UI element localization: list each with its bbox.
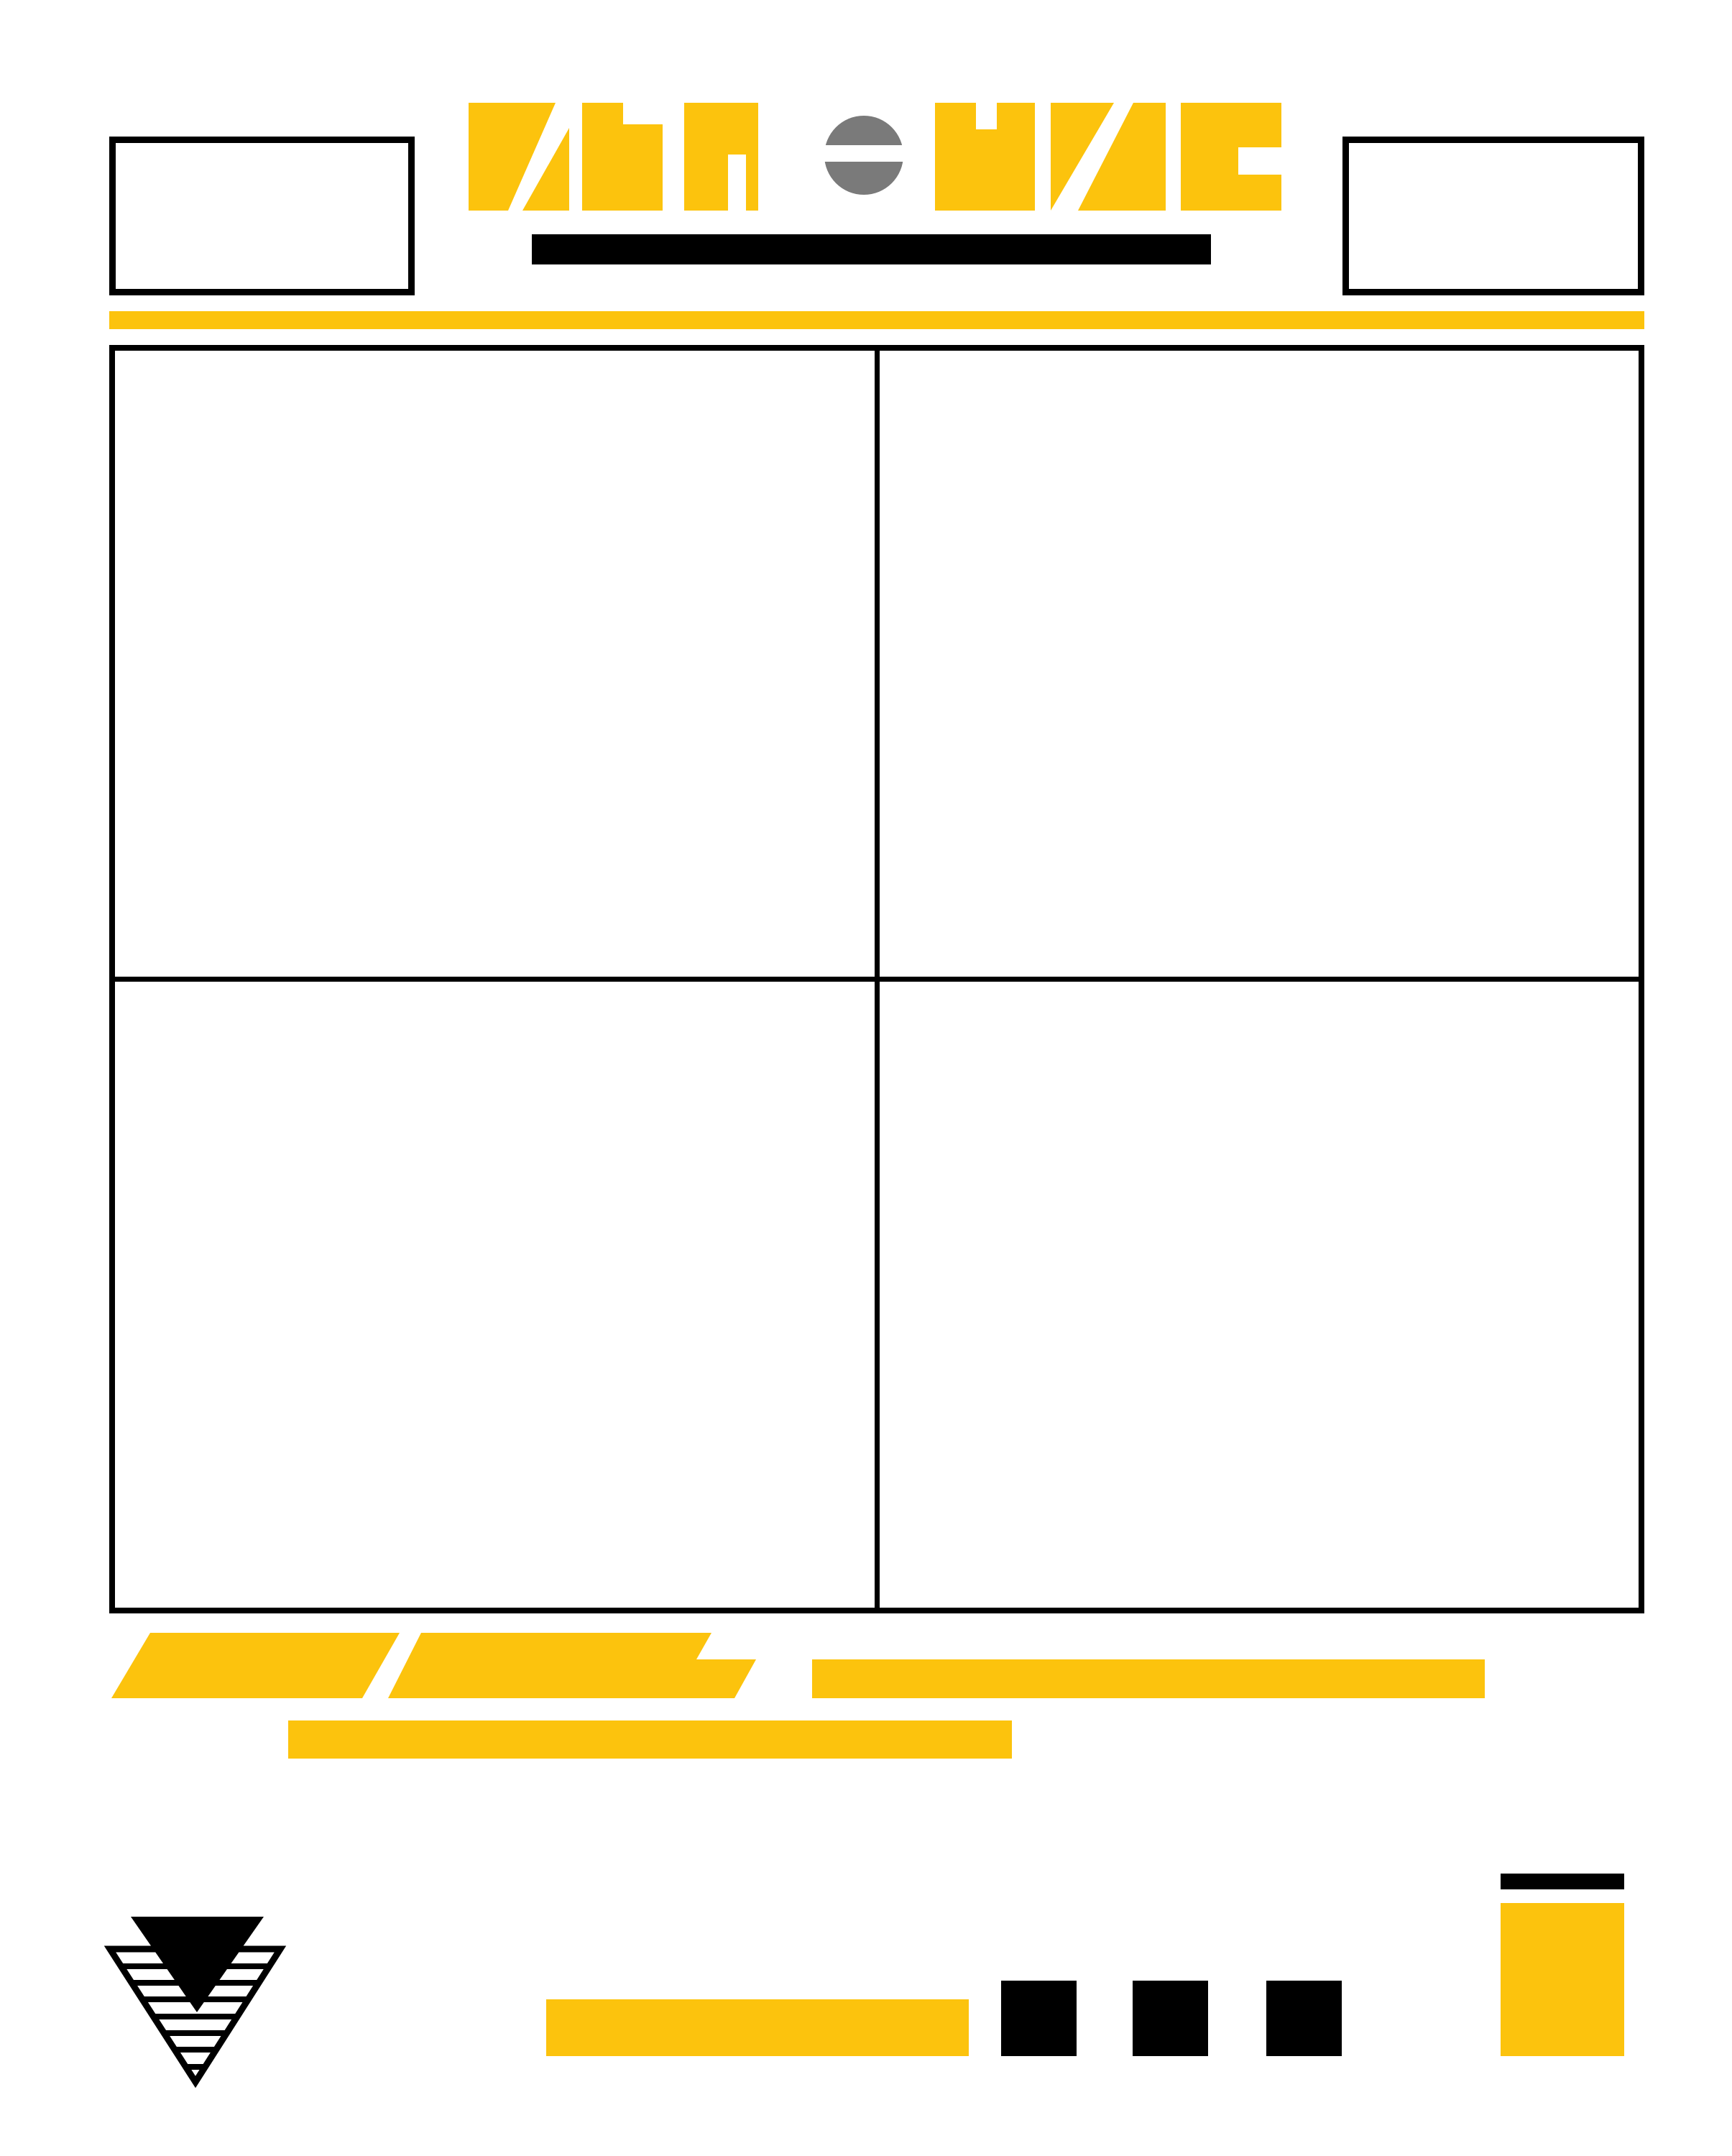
leaning-parallelogram (111, 1633, 400, 1698)
split-dot-glyph-icon (818, 116, 910, 195)
stepped-parallelogram (388, 1633, 756, 1698)
corner-black-bar (1501, 1874, 1624, 1889)
panel-grid (109, 345, 1644, 1613)
bottom-square-2 (1133, 1981, 1208, 2056)
panel-3 (115, 982, 875, 1608)
layered-triangles-logo (104, 1912, 287, 2088)
panel-1 (115, 351, 875, 977)
corner-yellow-block (1501, 1903, 1624, 2056)
poster-page (0, 0, 1732, 2156)
bracket-block-glyph-icon (1181, 103, 1281, 211)
panel-2 (880, 351, 1639, 977)
footer-strip-1 (812, 1659, 1485, 1698)
title-underline-bar (532, 234, 1211, 264)
notched-block-glyph-icon (935, 103, 1035, 211)
header-right-box (1342, 137, 1644, 295)
bottom-yellow-strip (546, 1999, 969, 2056)
header-left-box (109, 137, 415, 295)
accent-rule (109, 311, 1644, 329)
slashed-square-glyph-icon (469, 103, 569, 211)
stepped-block-glyph-icon (582, 103, 663, 211)
gated-block-glyph-icon (684, 103, 758, 211)
footer-strip-2 (288, 1720, 1012, 1759)
logotype (460, 103, 1294, 211)
panel-4 (880, 982, 1639, 1608)
bottom-square-1 (1001, 1981, 1077, 2056)
footer-shape-band (101, 1628, 1495, 1768)
bottom-square-3 (1266, 1981, 1342, 2056)
slashed-pair-glyph-icon (1051, 103, 1166, 211)
